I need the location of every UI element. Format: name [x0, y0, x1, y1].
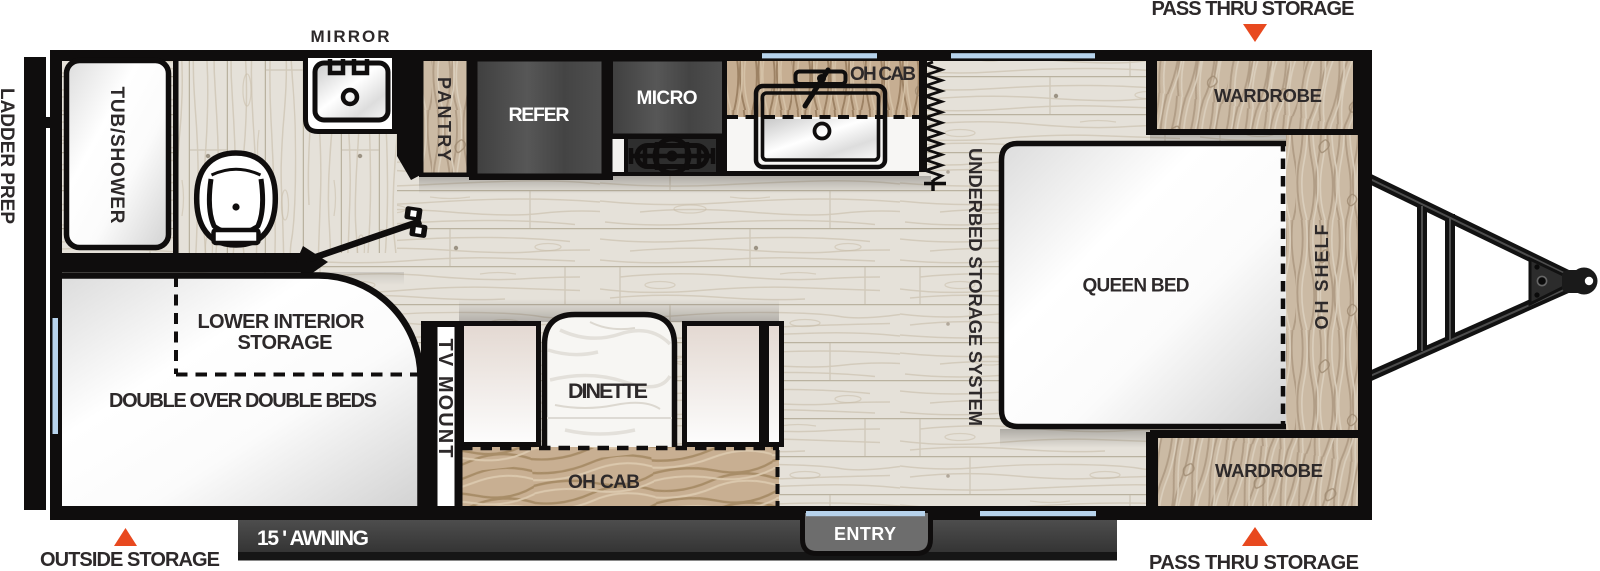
svg-text:PASS THRU STORAGE: PASS THRU STORAGE [1149, 552, 1359, 571]
svg-text:STORAGE: STORAGE [238, 332, 333, 354]
svg-text:LADDER PREP: LADDER PREP [0, 88, 17, 224]
svg-text:MICRO: MICRO [637, 88, 698, 109]
svg-text:MIRROR: MIRROR [311, 27, 390, 46]
svg-text:QUEEN BED: QUEEN BED [1083, 276, 1190, 297]
svg-text:TUB/SHOWER: TUB/SHOWER [106, 87, 127, 224]
svg-text:15 ' AWNING: 15 ' AWNING [257, 527, 369, 550]
svg-text:OUTSIDE STORAGE: OUTSIDE STORAGE [40, 549, 220, 571]
svg-text:LOWER INTERIOR: LOWER INTERIOR [198, 311, 366, 333]
svg-text:ENTRY: ENTRY [834, 524, 896, 544]
svg-text:WARDROBE: WARDROBE [1215, 460, 1323, 481]
svg-text:UNDERBED STORAGE SYSTEM: UNDERBED STORAGE SYSTEM [965, 148, 986, 426]
svg-text:DOUBLE OVER DOUBLE BEDS: DOUBLE OVER DOUBLE BEDS [109, 390, 377, 412]
svg-text:OH CAB: OH CAB [850, 64, 916, 85]
svg-text:REFER: REFER [509, 104, 570, 126]
svg-text:OH SHELF: OH SHELF [1312, 225, 1332, 330]
svg-text:PASS THRU STORAGE: PASS THRU STORAGE [1152, 0, 1355, 20]
svg-text:OH CAB: OH CAB [568, 472, 640, 493]
svg-text:WARDROBE: WARDROBE [1214, 85, 1322, 106]
svg-text:DINETTE: DINETTE [568, 379, 648, 403]
svg-text:TV MOUNT: TV MOUNT [434, 339, 456, 458]
